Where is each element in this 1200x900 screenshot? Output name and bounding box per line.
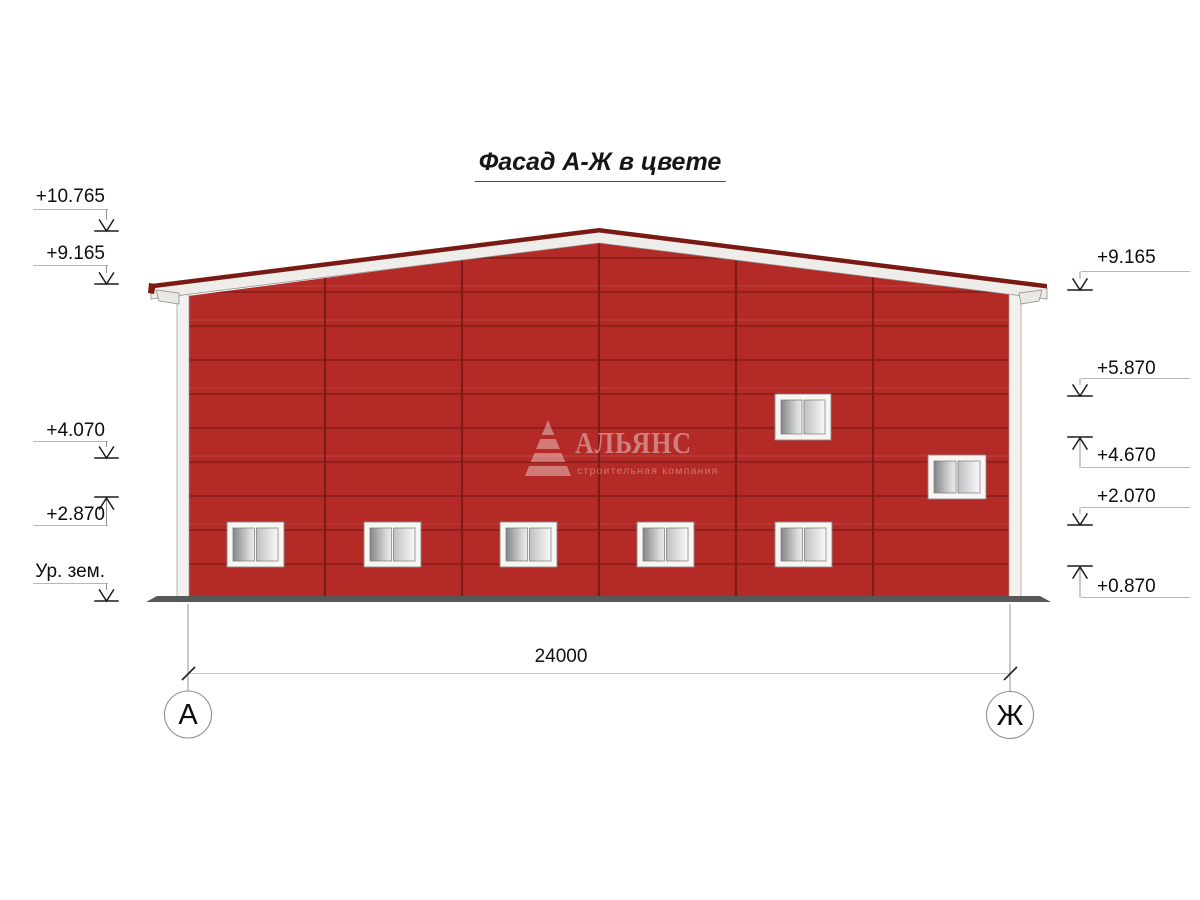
- window: [637, 522, 694, 567]
- elevation-label-right-2070: +2.070: [1097, 487, 1156, 506]
- dimension-graphics: [165, 604, 1034, 739]
- elevation-label-left-10765: +10.765: [36, 187, 105, 206]
- wall: [188, 242, 1021, 602]
- elevation-label-right-4670: +4.670: [1097, 446, 1156, 465]
- drawing-title: Фасад А-Ж в цвете: [475, 148, 726, 182]
- ground-strip: [146, 596, 1051, 602]
- elevation-label-left-2870: +2.870: [46, 505, 105, 524]
- axis-label-zh: Ж: [987, 700, 1033, 732]
- corner-trim-right: [1009, 291, 1021, 601]
- corner-trim-left: [177, 291, 189, 601]
- elevation-label-left-9165: +9.165: [46, 244, 105, 263]
- dimension-total: 24000: [516, 646, 606, 668]
- elevation-label-right-5870: +5.870: [1097, 359, 1156, 378]
- elevation-label-ground-level: Ур. зем.: [35, 562, 105, 581]
- window: [364, 522, 421, 567]
- elevation-label-right-9165: +9.165: [1097, 248, 1156, 267]
- elevation-label-left-4070: +4.070: [46, 421, 105, 440]
- elevation-label-right-0870: +0.870: [1097, 577, 1156, 596]
- facade-graphics: [0, 0, 1200, 900]
- window: [928, 455, 986, 499]
- window: [775, 522, 832, 567]
- window: [775, 394, 831, 440]
- axis-label-a: А: [165, 699, 211, 731]
- window: [227, 522, 284, 567]
- window: [500, 522, 557, 567]
- facade-drawing: Фасад А-Ж в цвете +10.765 +9.165 +4.070 …: [0, 0, 1200, 900]
- building: [146, 228, 1051, 602]
